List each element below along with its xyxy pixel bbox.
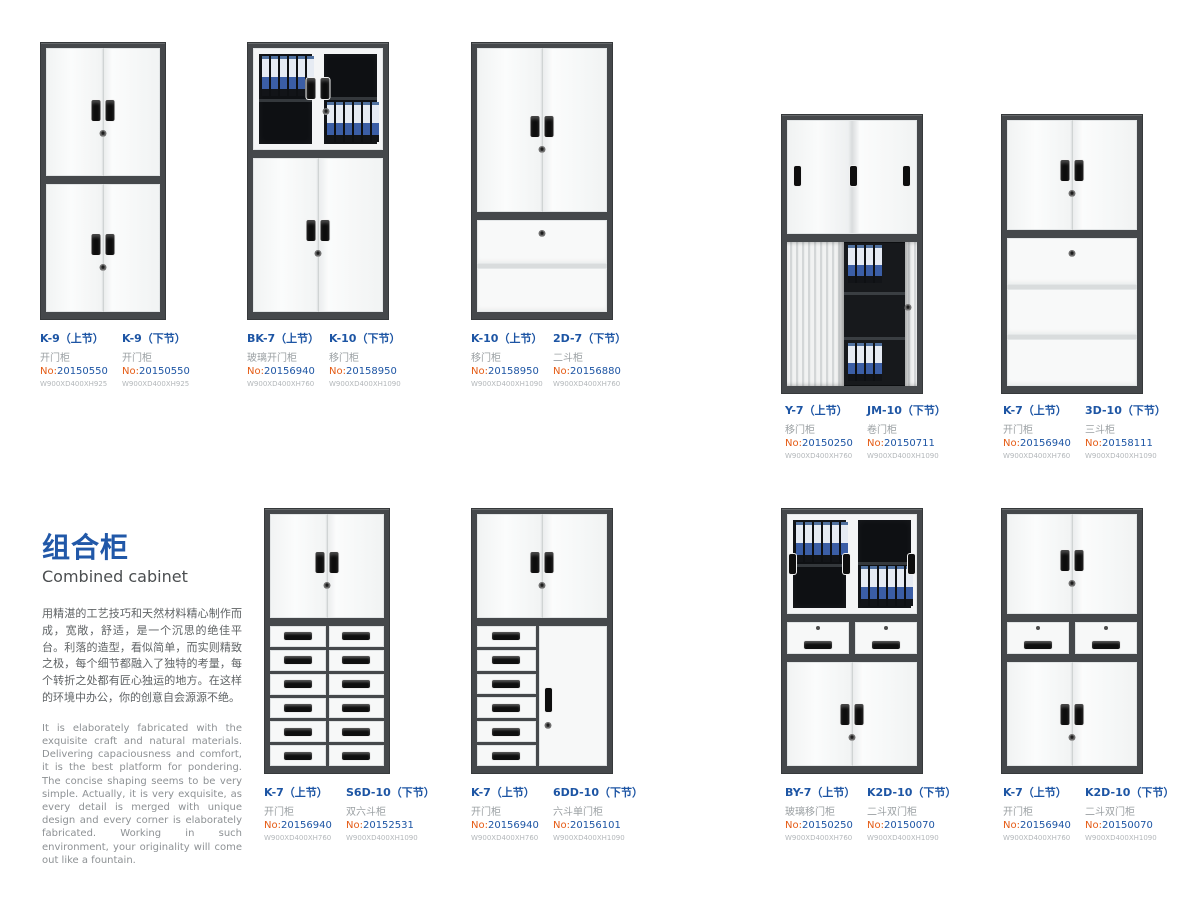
product-type: 六斗单门柜 [553, 803, 629, 818]
no-value: 20156940 [1020, 438, 1071, 449]
product-label: 2D-7（下节） 二斗柜 No:20156880 W900XD400XH760 [553, 330, 629, 388]
category-description-cn: 用精湛的工艺技巧和天然材料精心制作而成，宽敞，舒适，是一个沉思的绝佳平台。利落的… [42, 606, 242, 707]
handle-icon [321, 78, 330, 99]
section: （下节） [582, 332, 626, 345]
product-type: 二斗双门柜 [1085, 803, 1161, 818]
product-dimensions: W900XD400XH760 [471, 834, 547, 842]
product-type: 移门柜 [329, 349, 405, 364]
glass-pane [324, 54, 377, 144]
model: K-10 [471, 332, 498, 345]
drawer [855, 622, 917, 654]
handle-icon [284, 656, 312, 664]
no-prefix: No: [867, 438, 884, 449]
model-name: Y-7（上节） [785, 402, 861, 418]
category-title-cn: 组合柜 [42, 526, 242, 566]
product-label-group: BK-7（上节） 玻璃开门柜 No:20156940 W900XD400XH76… [247, 330, 405, 388]
product-type: 二斗柜 [553, 349, 629, 364]
product-dimensions: W900XD400XH1090 [471, 380, 547, 388]
product-dimensions: W900XD400XH1090 [346, 834, 422, 842]
drawer [477, 268, 607, 312]
cabinet-image-k7-s6d10 [264, 508, 390, 774]
handle-icon [342, 632, 370, 640]
product-number: No:20156940 [1003, 438, 1079, 449]
section: （上节） [811, 786, 855, 799]
handle-icon [1061, 704, 1070, 725]
section: （下节） [1122, 404, 1166, 417]
no-value: 20156940 [488, 820, 539, 831]
model: 6DD-10 [553, 786, 599, 799]
section: （上节） [1023, 404, 1067, 417]
no-prefix: No: [247, 366, 264, 377]
drawer [477, 721, 536, 742]
no-value: 20156940 [1020, 820, 1071, 831]
category-description-en: It is elaborately fabricated with the ex… [42, 722, 242, 867]
handle-icon [908, 554, 915, 574]
shelf [844, 337, 905, 340]
product-dimensions: W900XD400XH760 [264, 834, 340, 842]
product-number: No:20150550 [40, 366, 116, 377]
glass-pane [259, 54, 312, 144]
cabinet-image-y7-jm10 [781, 114, 923, 394]
product-label: K2D-10（下节） 二斗双门柜 No:20150070 W900XD400XH… [867, 784, 943, 842]
model: BY-7 [785, 786, 811, 799]
product-number: No:20156101 [553, 820, 629, 831]
product-type: 开门柜 [40, 349, 116, 364]
section: （下节） [912, 786, 956, 799]
model-name: K-7（上节） [471, 784, 547, 800]
sliding-door-section [787, 120, 917, 234]
drawer [329, 650, 385, 671]
model-name: K-10（上节） [471, 330, 547, 346]
product-dimensions: W900XD400XH760 [553, 380, 629, 388]
product-type: 玻璃开门柜 [247, 349, 323, 364]
handle-icon [903, 166, 910, 186]
handle-icon [855, 704, 864, 725]
product-label-group: K-7（上节） 开门柜 No:20156940 W900XD400XH760 6… [471, 784, 629, 842]
cabinet-image-k7-3d10 [1001, 114, 1143, 394]
handle-icon [545, 116, 554, 137]
door-handles [841, 704, 864, 725]
product-type: 双六斗柜 [346, 803, 422, 818]
model: K-7 [1003, 786, 1023, 799]
keyhole-icon [324, 582, 331, 589]
cabinet-image-k10-2d7 [471, 42, 613, 320]
drawer [270, 626, 326, 647]
no-value: 20150250 [802, 438, 853, 449]
glass-pane [858, 520, 911, 608]
product-dimensions: W900XD400XH925 [40, 380, 116, 388]
drawer [1075, 622, 1137, 654]
handle-icon [321, 220, 330, 241]
door-handles [1061, 160, 1084, 181]
product-type: 开门柜 [1003, 803, 1079, 818]
handle-icon [284, 704, 312, 712]
section: （下节） [599, 786, 643, 799]
tambour-door [905, 242, 917, 386]
binders-row [848, 245, 882, 283]
product-label: Y-7（上节） 移门柜 No:20150250 W900XD400XH760 [785, 402, 861, 460]
no-value: 20158950 [346, 366, 397, 377]
product-number: No:20158950 [329, 366, 405, 377]
glass-door-section [253, 48, 383, 150]
model: K-7 [264, 786, 284, 799]
handle-icon [804, 641, 832, 649]
handle-icon [531, 552, 540, 573]
no-value: 20150250 [802, 820, 853, 831]
handle-icon [872, 641, 900, 649]
model-name: K-7（上节） [1003, 784, 1079, 800]
no-value: 20150070 [1102, 820, 1153, 831]
product-dimensions: W900XD400XH760 [1003, 834, 1079, 842]
section: （下节） [142, 332, 186, 345]
product-label: 3D-10（下节） 三斗柜 No:20158111 W900XD400XH109… [1085, 402, 1161, 460]
catalog-page: K-9（上节） 开门柜 No:20150550 W900XD400XH925 K… [0, 0, 1200, 900]
shelf [324, 97, 377, 100]
product-type: 卷门柜 [867, 421, 943, 436]
drawer [270, 721, 326, 742]
product-label: K-9（上节） 开门柜 No:20150550 W900XD400XH925 [40, 330, 116, 388]
keyhole-icon [1069, 734, 1076, 741]
model: K-9 [122, 332, 142, 345]
handle-icon [342, 728, 370, 736]
handle-icon [1092, 641, 1120, 649]
no-value: 20156880 [570, 366, 621, 377]
product-label-group: K-7（上节） 开门柜 No:20156940 W900XD400XH760 S… [264, 784, 422, 842]
section: （上节） [491, 786, 535, 799]
model-name: 6DD-10（下节） [553, 784, 629, 800]
drawer-section [1007, 238, 1137, 386]
section: （上节） [60, 332, 104, 345]
category-title-en: Combined cabinet [42, 567, 242, 586]
door-section [477, 514, 607, 618]
drawer [329, 698, 385, 719]
model-name: K-7（上节） [1003, 402, 1079, 418]
product-number: No:20150711 [867, 438, 943, 449]
section: （下节） [356, 332, 400, 345]
product-dimensions: W900XD400XH760 [247, 380, 323, 388]
handle-icon [307, 220, 316, 241]
door-handles [316, 552, 339, 573]
drawer [329, 745, 385, 766]
model-name: K2D-10（下节） [867, 784, 943, 800]
product-number: No:20158111 [1085, 438, 1161, 449]
section: （上节） [1023, 786, 1067, 799]
drawer [1007, 238, 1137, 285]
keyhole-icon [1104, 626, 1108, 630]
keyhole-icon [1069, 250, 1076, 257]
section: （上节） [498, 332, 542, 345]
no-prefix: No: [1003, 438, 1020, 449]
handle-icon [284, 632, 312, 640]
product-label: K-7（上节） 开门柜 No:20156940 W900XD400XH760 [1003, 784, 1079, 842]
shelf [844, 292, 905, 295]
section: （下节） [391, 786, 435, 799]
door-section [787, 662, 917, 766]
handle-icon [492, 704, 520, 712]
cabinet-image-by7-k2d10 [781, 508, 923, 774]
product-dimensions: W900XD400XH1090 [329, 380, 405, 388]
model-name: K-9（下节） [122, 330, 198, 346]
door-handles [92, 100, 115, 121]
drawer [477, 626, 536, 647]
product-type: 二斗双门柜 [867, 803, 943, 818]
cabinet-image-k9-k9 [40, 42, 166, 320]
no-prefix: No: [471, 366, 488, 377]
door-section [270, 514, 384, 618]
handle-icon [492, 680, 520, 688]
no-prefix: No: [1003, 820, 1020, 831]
section: （下节） [1130, 786, 1174, 799]
no-prefix: No: [785, 438, 802, 449]
shelf [259, 99, 312, 102]
drawer-column [477, 626, 536, 766]
product-number: No:20156880 [553, 366, 629, 377]
model-name: 2D-7（下节） [553, 330, 629, 346]
product-dimensions: W900XD400XH760 [785, 834, 861, 842]
keyhole-icon [100, 264, 107, 271]
no-prefix: No: [553, 366, 570, 377]
no-prefix: No: [122, 366, 139, 377]
keyhole-icon [905, 304, 912, 311]
model-name: K-10（下节） [329, 330, 405, 346]
product-number: No:20156940 [1003, 820, 1079, 831]
handle-icon [492, 728, 520, 736]
product-type: 开门柜 [471, 803, 547, 818]
product-label-group: K-7（上节） 开门柜 No:20156940 W900XD400XH760 K… [1003, 784, 1161, 842]
roller-door-section [787, 242, 917, 386]
cabinet-image-bk7-k10 [247, 42, 389, 320]
door-section [477, 48, 607, 212]
product-number: No:20150070 [1085, 820, 1161, 831]
handle-icon [492, 752, 520, 760]
product-dimensions: W900XD400XH1090 [1085, 834, 1161, 842]
no-prefix: No: [785, 820, 802, 831]
no-value: 20152531 [363, 820, 414, 831]
keyhole-icon [539, 146, 546, 153]
drawer-grid-section [270, 626, 384, 766]
drawer [270, 674, 326, 695]
door-handles [1061, 550, 1084, 571]
product-number: No:20156940 [471, 820, 547, 831]
door-handles [307, 78, 330, 99]
no-value: 20150070 [884, 820, 935, 831]
keyhole-icon [315, 250, 322, 257]
keyhole-icon [849, 734, 856, 741]
shelf [858, 562, 911, 565]
handle-icon [1061, 550, 1070, 571]
cabinet-image-k7-k2d10 [1001, 508, 1143, 774]
no-value: 20150550 [139, 366, 190, 377]
section: （下节） [902, 404, 946, 417]
door-handles [92, 234, 115, 255]
drawer [270, 650, 326, 671]
glass-sliding-section [787, 514, 917, 614]
no-value: 20156940 [264, 366, 315, 377]
keyhole-icon [884, 626, 888, 630]
door-handles [1061, 704, 1084, 725]
model-name: BK-7（上节） [247, 330, 323, 346]
keyhole-icon [323, 108, 330, 115]
handle-icon [342, 704, 370, 712]
door-section [1007, 662, 1137, 766]
door-section [46, 184, 160, 312]
drawer-section [477, 220, 607, 312]
product-number: No:20152531 [346, 820, 422, 831]
drawer [477, 220, 607, 264]
keyhole-icon [816, 626, 820, 630]
product-dimensions: W900XD400XH925 [122, 380, 198, 388]
product-dimensions: W900XD400XH760 [785, 452, 861, 460]
product-label: K-10（上节） 移门柜 No:20158950 W900XD400XH1090 [471, 330, 547, 388]
product-label: K2D-10（下节） 二斗双门柜 No:20150070 W900XD400XH… [1085, 784, 1161, 842]
handle-icon [850, 166, 857, 186]
glass-pane [793, 520, 846, 608]
door-section [46, 48, 160, 176]
handle-icon [1024, 641, 1052, 649]
no-prefix: No: [264, 820, 281, 831]
model: K-7 [471, 786, 491, 799]
keyhole-icon [100, 130, 107, 137]
handle-icon [492, 632, 520, 640]
model-name: K-9（上节） [40, 330, 116, 346]
product-dimensions: W900XD400XH1090 [1085, 452, 1161, 460]
product-label-group: BY-7（上节） 玻璃移门柜 No:20150250 W900XD400XH76… [785, 784, 943, 842]
model: K-7 [1003, 404, 1023, 417]
drawer [1007, 339, 1137, 386]
handle-icon [284, 680, 312, 688]
single-door [539, 626, 608, 766]
product-label: K-7（上节） 开门柜 No:20156940 W900XD400XH760 [1003, 402, 1079, 460]
drawer [1007, 622, 1069, 654]
product-number: No:20156940 [247, 366, 323, 377]
product-label-group: K-10（上节） 移门柜 No:20158950 W900XD400XH1090… [471, 330, 629, 388]
product-type: 移门柜 [785, 421, 861, 436]
drawer [270, 745, 326, 766]
no-prefix: No: [1085, 438, 1102, 449]
product-dimensions: W900XD400XH1090 [867, 834, 943, 842]
door-section [253, 158, 383, 312]
handle-icon [794, 166, 801, 186]
model-name: 3D-10（下节） [1085, 402, 1161, 418]
drawer [1007, 289, 1137, 336]
product-number: No:20156940 [264, 820, 340, 831]
binders-row [796, 522, 848, 562]
no-prefix: No: [553, 820, 570, 831]
keyhole-icon [1036, 626, 1040, 630]
handle-icon [1061, 160, 1070, 181]
drawer [329, 674, 385, 695]
drawer [329, 626, 385, 647]
product-type: 移门柜 [471, 349, 547, 364]
handle-icon [545, 688, 552, 712]
binders-row [327, 102, 379, 142]
product-type: 开门柜 [1003, 421, 1079, 436]
product-number: No:20150250 [785, 820, 861, 831]
drawer [477, 674, 536, 695]
product-label-group: K-7（上节） 开门柜 No:20156940 W900XD400XH760 3… [1003, 402, 1161, 460]
no-prefix: No: [867, 820, 884, 831]
product-number: No:20150550 [122, 366, 198, 377]
shelf [793, 564, 846, 567]
handle-icon [106, 100, 115, 121]
product-number: No:20158950 [471, 366, 547, 377]
model: BK-7 [247, 332, 275, 345]
no-prefix: No: [1085, 820, 1102, 831]
handle-icon [330, 552, 339, 573]
handle-icon [284, 752, 312, 760]
no-value: 20158111 [1102, 438, 1153, 449]
drawer-door-section [477, 626, 607, 766]
handle-icon [92, 100, 101, 121]
model: K2D-10 [867, 786, 912, 799]
model: K2D-10 [1085, 786, 1130, 799]
product-dimensions: W900XD400XH1090 [867, 452, 943, 460]
door-section [1007, 514, 1137, 614]
product-type: 三斗柜 [1085, 421, 1161, 436]
tambour-door [787, 242, 844, 386]
drawer [787, 622, 849, 654]
door-handles [307, 220, 330, 241]
keyhole-icon [545, 722, 552, 729]
product-type: 玻璃移门柜 [785, 803, 861, 818]
product-label: 6DD-10（下节） 六斗单门柜 No:20156101 W900XD400XH… [553, 784, 629, 842]
cabinet-image-k7-6dd10 [471, 508, 613, 774]
category-intro: 组合柜 Combined cabinet 用精湛的工艺技巧和天然材料精心制作而成… [42, 526, 242, 867]
handle-icon [284, 728, 312, 736]
product-label-group: K-9（上节） 开门柜 No:20150550 W900XD400XH925 K… [40, 330, 198, 388]
binders-row [848, 343, 882, 381]
handle-icon [1075, 550, 1084, 571]
product-label: JM-10（下节） 卷门柜 No:20150711 W900XD400XH109… [867, 402, 943, 460]
product-dimensions: W900XD400XH760 [1003, 452, 1079, 460]
product-dimensions: W900XD400XH1090 [553, 834, 629, 842]
product-label: K-9（下节） 开门柜 No:20150550 W900XD400XH925 [122, 330, 198, 388]
handle-icon [307, 78, 316, 99]
model-name: JM-10（下节） [867, 402, 943, 418]
no-prefix: No: [346, 820, 363, 831]
no-value: 20150550 [57, 366, 108, 377]
handle-icon [1075, 704, 1084, 725]
door-handles [531, 116, 554, 137]
drawer-row-section [1007, 622, 1137, 654]
door-handles [531, 552, 554, 573]
door-section [1007, 120, 1137, 230]
handle-icon [92, 234, 101, 255]
model: S6D-10 [346, 786, 391, 799]
keyhole-icon [1069, 190, 1076, 197]
handle-icon [531, 116, 540, 137]
product-label: BY-7（上节） 玻璃移门柜 No:20150250 W900XD400XH76… [785, 784, 861, 842]
model: K-9 [40, 332, 60, 345]
no-prefix: No: [40, 366, 57, 377]
model: 2D-7 [553, 332, 582, 345]
product-label: K-7（上节） 开门柜 No:20156940 W900XD400XH760 [471, 784, 547, 842]
product-type: 开门柜 [122, 349, 198, 364]
product-label: BK-7（上节） 玻璃开门柜 No:20156940 W900XD400XH76… [247, 330, 323, 388]
drawer [477, 745, 536, 766]
product-number: No:20150250 [785, 438, 861, 449]
product-type: 开门柜 [264, 803, 340, 818]
model: JM-10 [867, 404, 902, 417]
product-label: K-10（下节） 移门柜 No:20158950 W900XD400XH1090 [329, 330, 405, 388]
model: 3D-10 [1085, 404, 1122, 417]
handle-icon [1075, 160, 1084, 181]
product-label: K-7（上节） 开门柜 No:20156940 W900XD400XH760 [264, 784, 340, 842]
model-name: K-7（上节） [264, 784, 340, 800]
binders-row [861, 566, 913, 606]
drawer [329, 721, 385, 742]
product-number: No:20150070 [867, 820, 943, 831]
